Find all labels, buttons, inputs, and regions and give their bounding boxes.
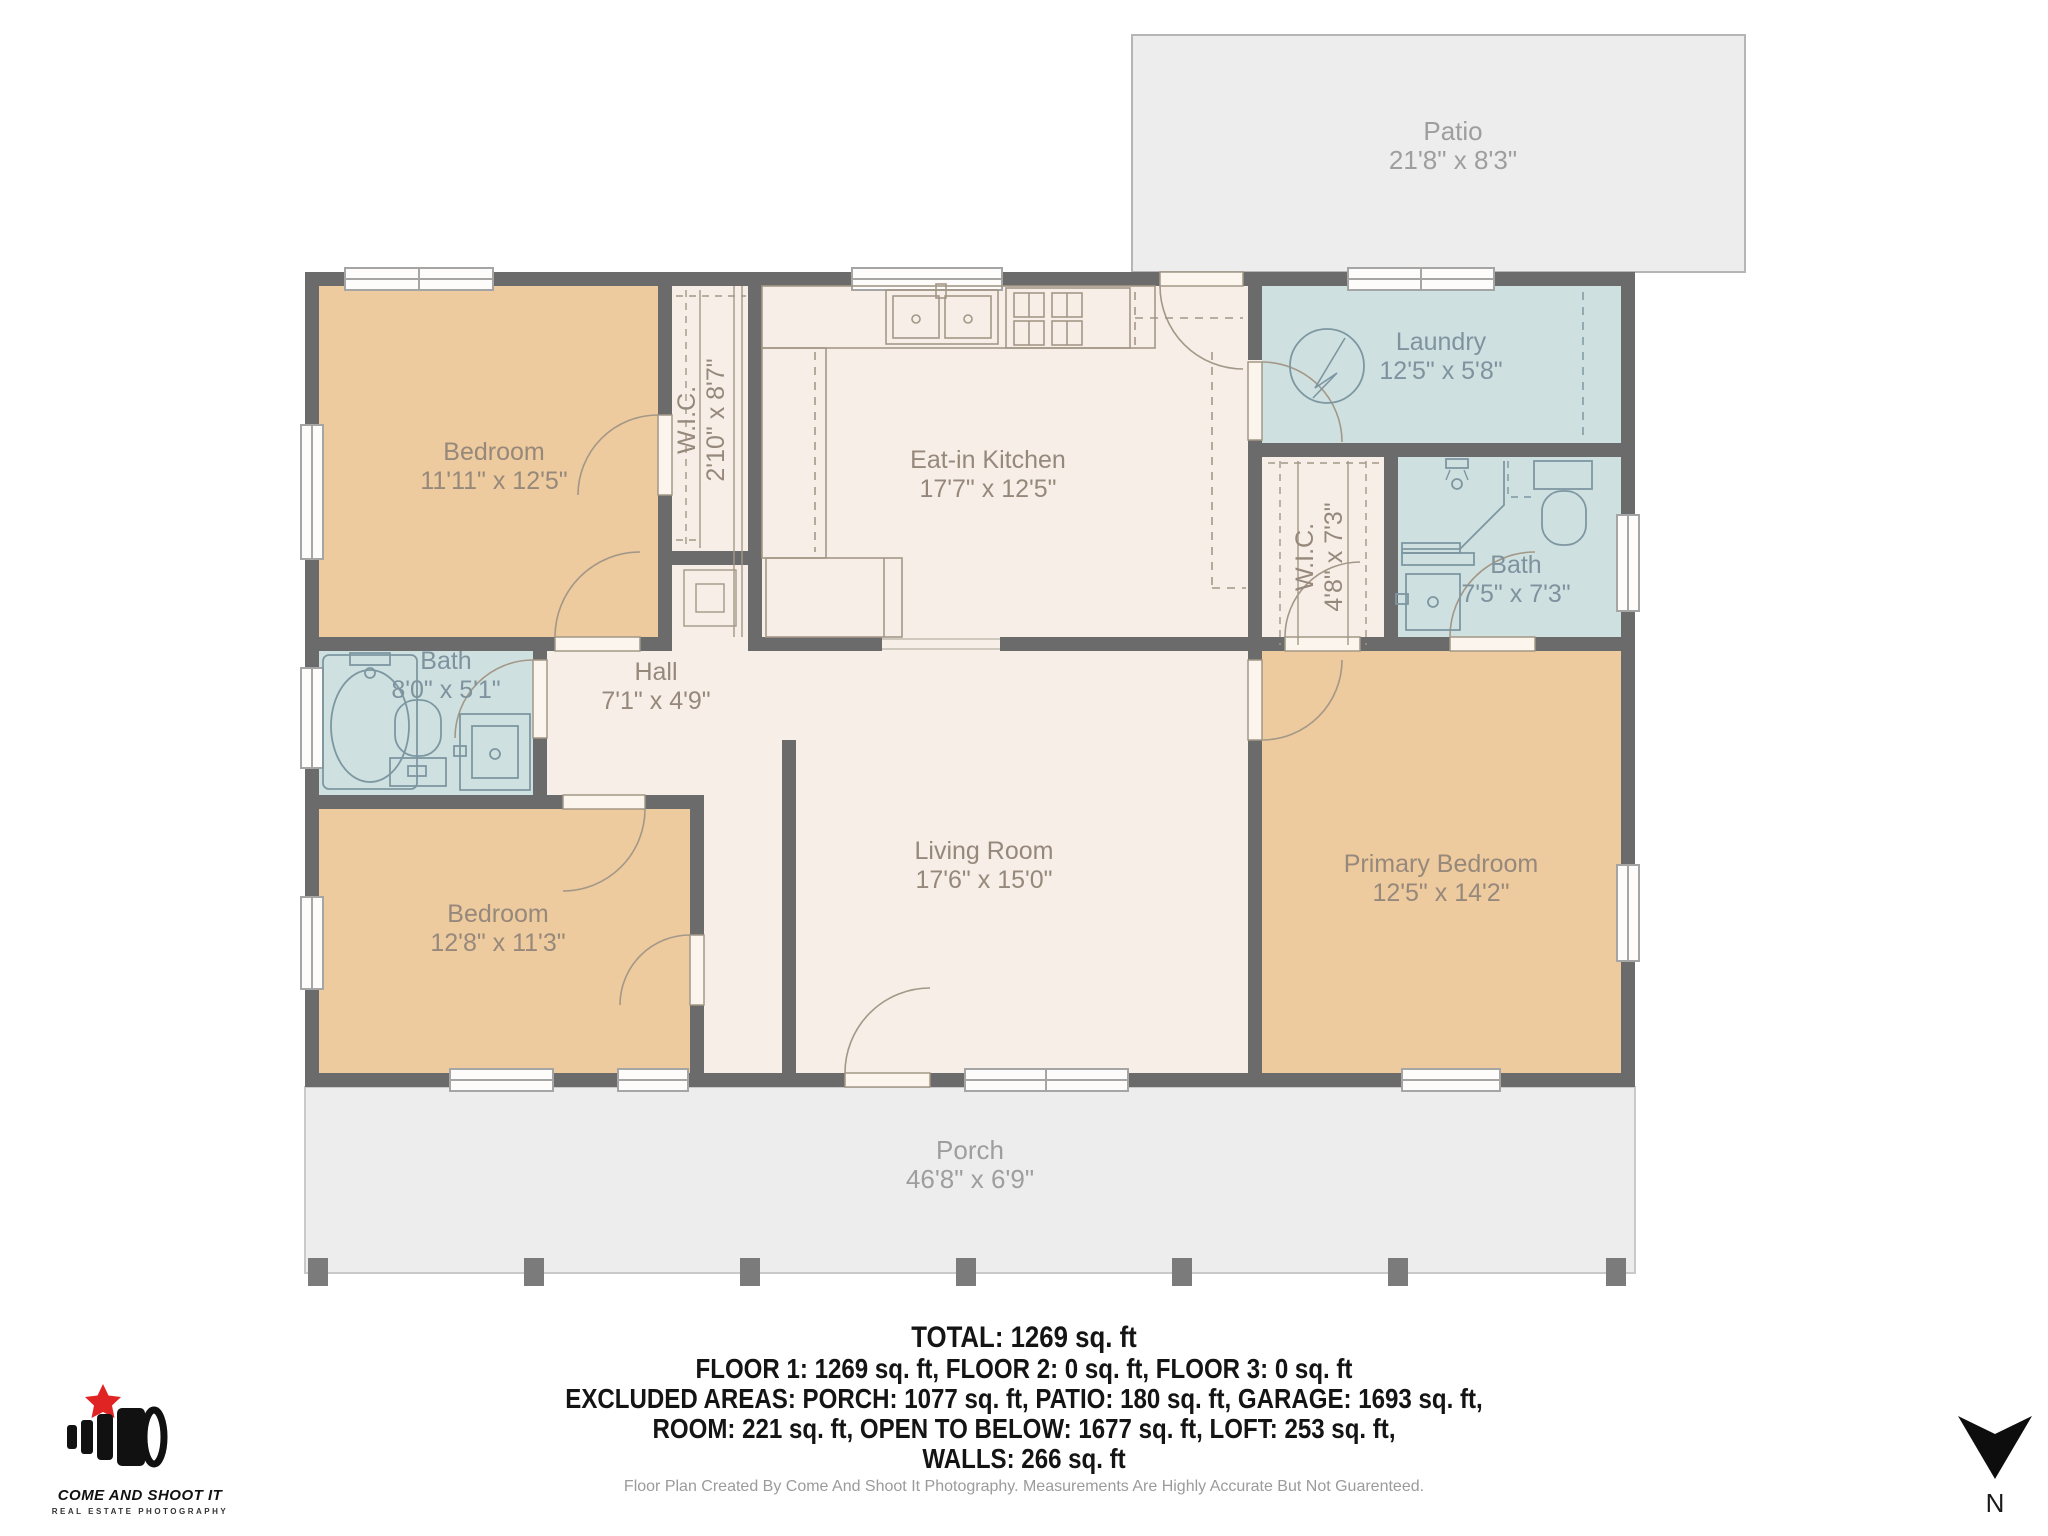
- lens-icon: [67, 1408, 145, 1466]
- window: [1617, 865, 1639, 961]
- excluded-areas-text-2: ROOM: 221 sq. ft, OPEN TO BELOW: 1677 sq…: [143, 1414, 1904, 1444]
- door-leaf: [1248, 362, 1262, 440]
- window: [345, 268, 493, 290]
- door-leaf: [1285, 637, 1360, 651]
- door-leaf: [658, 415, 672, 495]
- window: [1348, 268, 1494, 290]
- disclaimer-text: Floor Plan Created By Come And Shoot It …: [0, 1478, 2048, 1496]
- door-leaf: [1248, 660, 1262, 740]
- window: [965, 1069, 1128, 1091]
- porch-region: [305, 1087, 1635, 1273]
- star-icon: [85, 1384, 121, 1418]
- door-leaf: [1450, 637, 1535, 651]
- total-area-text: TOTAL: 1269 sq. ft: [143, 1322, 1904, 1354]
- patio-region: [1132, 35, 1745, 272]
- window: [1402, 1069, 1500, 1091]
- door-leaf: [690, 935, 704, 1005]
- window: [301, 897, 323, 989]
- walls-area-text: WALLS: 266 sq. ft: [143, 1444, 1904, 1474]
- floors-text: FLOOR 1: 1269 sq. ft, FLOOR 2: 0 sq. ft,…: [143, 1354, 1904, 1384]
- window: [618, 1069, 688, 1091]
- camera-logo-icon: [30, 1382, 250, 1478]
- lens-ring-icon: [144, 1410, 164, 1464]
- area-summary: TOTAL: 1269 sq. ft FLOOR 1: 1269 sq. ft,…: [143, 1322, 1904, 1474]
- north-label: N: [1940, 1488, 2048, 1519]
- floor-plan-drawing: [0, 0, 2048, 1536]
- bath-2-floor: [1398, 457, 1621, 637]
- company-logo: COME AND SHOOT IT REAL ESTATE PHOTOGRAPH…: [30, 1382, 250, 1516]
- logo-title: COME AND SHOOT IT: [30, 1487, 250, 1504]
- room-floors: [305, 272, 1635, 1087]
- window: [1617, 515, 1639, 611]
- floor-plan-page: Patio 21'8" x 8'3" Bedroom 11'11" x 12'5…: [0, 0, 2048, 1536]
- primary-bedroom-floor: [1262, 651, 1621, 1073]
- door-leaf: [563, 795, 645, 809]
- north-compass: N: [1940, 1415, 2048, 1519]
- window: [301, 668, 323, 768]
- north-arrow-icon: [1940, 1415, 2048, 1481]
- laundry-floor: [1262, 286, 1621, 443]
- door-leaf: [845, 1073, 930, 1087]
- door-leaf: [533, 660, 547, 738]
- logo-subtitle: REAL ESTATE PHOTOGRAPHY: [30, 1507, 250, 1516]
- bedroom-1-floor: [319, 286, 658, 637]
- door-leaf: [555, 637, 640, 651]
- door-leaf: [1160, 272, 1243, 286]
- window: [450, 1069, 553, 1091]
- window: [301, 425, 323, 559]
- excluded-areas-text: EXCLUDED AREAS: PORCH: 1077 sq. ft, PATI…: [143, 1384, 1904, 1414]
